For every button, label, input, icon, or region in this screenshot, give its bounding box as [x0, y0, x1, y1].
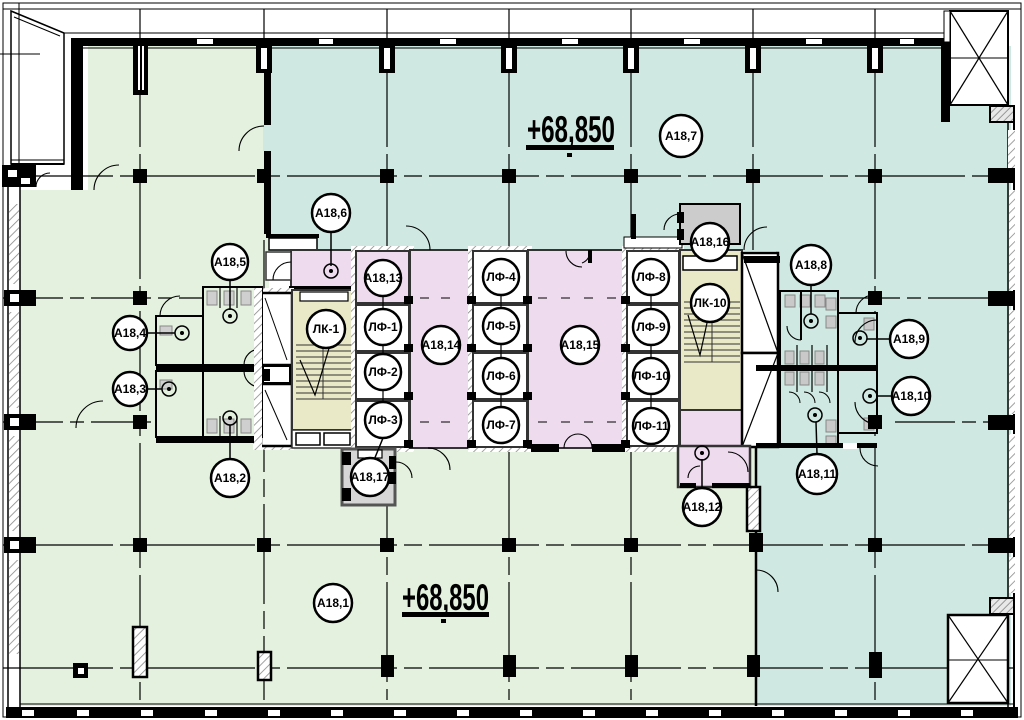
svg-text:+68,850: +68,850: [527, 109, 615, 150]
svg-text:А18,16: А18,16: [691, 235, 730, 249]
svg-text:А18,4: А18,4: [114, 326, 146, 340]
svg-text:ЛФ-4: ЛФ-4: [486, 270, 516, 284]
svg-text:А18,15: А18,15: [561, 338, 600, 352]
svg-text:А18,2: А18,2: [214, 471, 246, 485]
svg-text:А18,13: А18,13: [364, 271, 403, 285]
svg-text:А18,12: А18,12: [683, 500, 722, 514]
svg-text:ЛФ-6: ЛФ-6: [486, 369, 516, 383]
svg-text:А18,6: А18,6: [315, 206, 347, 220]
svg-text:+68,850: +68,850: [402, 577, 489, 618]
svg-text:А18,14: А18,14: [422, 338, 461, 352]
svg-text:А18,7: А18,7: [665, 129, 697, 143]
svg-text:А18,11: А18,11: [798, 467, 836, 481]
svg-text:ЛФ-10: ЛФ-10: [633, 369, 669, 383]
svg-text:ЛФ-3: ЛФ-3: [368, 413, 398, 427]
svg-text:А18,3: А18,3: [114, 382, 146, 396]
svg-text:А18,5: А18,5: [214, 255, 246, 269]
svg-text:ЛФ-1: ЛФ-1: [368, 320, 398, 334]
svg-text:А18,1: А18,1: [317, 596, 349, 610]
svg-text:ЛФ-2: ЛФ-2: [368, 365, 398, 379]
svg-text:А18,9: А18,9: [893, 332, 925, 346]
svg-text:ЛФ-11: ЛФ-11: [633, 419, 669, 433]
svg-text:ЛК-1: ЛК-1: [313, 322, 340, 336]
svg-text:ЛФ-7: ЛФ-7: [486, 418, 516, 432]
svg-text:А18,8: А18,8: [795, 258, 827, 272]
svg-text:А18,17: А18,17: [351, 470, 390, 484]
svg-text:ЛК-10: ЛК-10: [693, 296, 726, 310]
svg-text:А18,10: А18,10: [892, 389, 931, 403]
svg-text:ЛФ-5: ЛФ-5: [486, 319, 516, 333]
svg-text:ЛФ-9: ЛФ-9: [636, 320, 666, 334]
svg-text:ЛФ-8: ЛФ-8: [636, 270, 666, 284]
